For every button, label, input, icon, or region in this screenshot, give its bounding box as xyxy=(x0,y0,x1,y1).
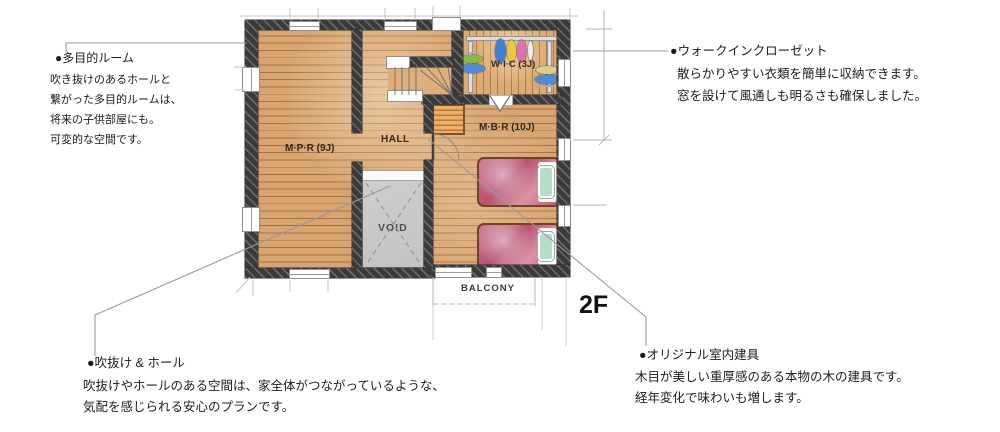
note-line: 木目が美しい重厚感のある本物の木の建具です。 xyxy=(635,367,909,388)
inner-wall-stair-top xyxy=(408,57,453,67)
closet-door-opening xyxy=(489,95,513,106)
window xyxy=(558,59,571,87)
clothes-item xyxy=(536,66,559,74)
note-line: 将来の子供部屋にも。 xyxy=(50,110,182,130)
note-line: 散らかりやすい衣類を簡単に収納できます。 xyxy=(677,64,927,86)
note-walk-in-closet: ●ウォークインクローゼット 散らかりやすい衣類を簡単に収納できます。 窓を設けて… xyxy=(670,40,927,107)
note-interior-door: ●オリジナル室内建具 木目が美しい重厚感のある本物の木の建具です。 経年変化で味… xyxy=(635,344,909,408)
bed-pillow xyxy=(538,232,554,261)
outer-wall-left xyxy=(245,20,258,278)
bed-upper xyxy=(477,157,561,207)
stair-handrail xyxy=(387,90,423,102)
inner-wall-mpr-upper xyxy=(352,29,362,133)
window xyxy=(289,21,320,31)
bed-lower xyxy=(477,223,561,270)
window xyxy=(242,67,260,92)
note-line: 可変的な空間です。 xyxy=(50,130,182,150)
window xyxy=(242,207,260,232)
clothes-item xyxy=(528,41,533,60)
window xyxy=(558,205,571,227)
bed-sheet xyxy=(538,228,557,265)
inner-wall-mpr-lower xyxy=(352,162,362,268)
hanger-bar xyxy=(536,85,554,87)
note-line: 吹き抜けのあるホールと xyxy=(50,70,182,90)
inner-wall-stair-bottom xyxy=(422,95,462,104)
floorplan-page: M·P·R (9J) HALL W·I·C (3J) M·B·R (10J) V… xyxy=(0,0,1000,432)
floor-label-2f: 2F xyxy=(579,291,608,320)
room-label-mpr: M·P·R (9J) xyxy=(285,143,334,154)
note-title-text: 吹抜け & ホール xyxy=(95,356,185,370)
bed-pillow xyxy=(538,166,554,198)
room-label-mbr: M·B·R (10J) xyxy=(479,122,535,133)
bed-sheet xyxy=(538,162,557,202)
inner-wall-wic-left xyxy=(452,29,463,95)
room-label-hall: HALL xyxy=(381,134,410,145)
clothes-item xyxy=(460,64,485,73)
room-label-balcony: BALCONY xyxy=(461,283,515,294)
note-line: 経年変化で味わいも増します。 xyxy=(635,388,909,409)
note-multipurpose-room: ●多目的ルーム 吹き抜けのあるホールと 繋がった多目的ルームは、 将来の子供部屋… xyxy=(50,49,182,150)
note-title-text: オリジナル室内建具 xyxy=(647,348,760,362)
inner-wall-mbr-left-upper xyxy=(424,104,433,133)
inner-wall-wic-bottom-a xyxy=(462,95,489,104)
bullet-icon: ● xyxy=(639,348,647,362)
outer-wall-bottom-left xyxy=(245,268,435,278)
understair-shelf xyxy=(432,104,465,135)
note-line: 繋がった多目的ルームは、 xyxy=(50,90,182,110)
inner-wall-mbr-left-lower xyxy=(424,160,433,268)
bullet-icon: ● xyxy=(87,356,95,370)
inner-wall-wic-bottom-b xyxy=(511,95,562,104)
note-line: 気配を感じられる安心のプランです。 xyxy=(83,397,445,418)
hanger-bar xyxy=(462,52,479,54)
window xyxy=(558,138,571,161)
bullet-icon: ● xyxy=(670,44,678,58)
window xyxy=(289,269,330,279)
balcony-door xyxy=(435,267,472,278)
stair-handrail xyxy=(386,56,410,69)
clothes-item xyxy=(461,55,483,63)
note-line: 吹抜けやホールのある空間は、家全体がつながっているような、 xyxy=(83,376,445,397)
note-line: 窓を設けて風通しも明るさも確保しました。 xyxy=(677,86,927,108)
stairwell-window xyxy=(432,17,461,31)
note-void-hall: ●吹抜け & ホール 吹抜けやホールのある空間は、家全体がつながっているような、… xyxy=(83,352,445,417)
room-label-wic: W·I·C (3J) xyxy=(491,59,535,70)
window xyxy=(384,21,417,31)
note-title-text: 多目的ルーム xyxy=(62,51,134,65)
note-title-text: ウォークインクローゼット xyxy=(678,44,828,58)
balcony-door xyxy=(486,267,502,278)
room-label-void: VOID xyxy=(378,222,408,234)
